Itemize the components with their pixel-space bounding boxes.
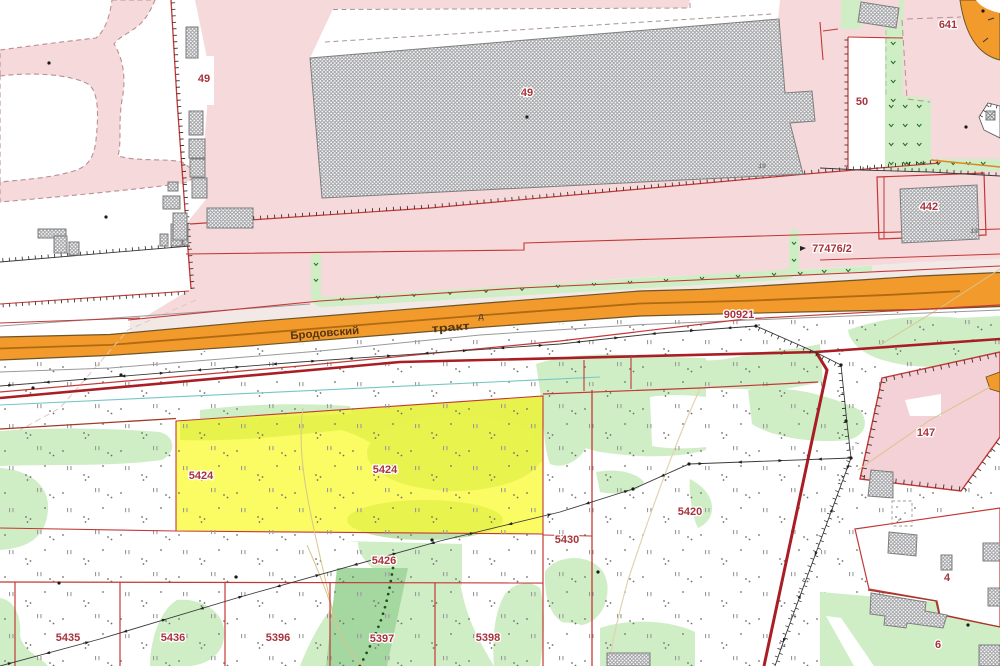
svg-text:6: 6 — [935, 639, 941, 651]
svg-text:442: 442 — [920, 201, 938, 213]
svg-text:641: 641 — [939, 19, 957, 31]
svg-text:5424: 5424 — [373, 464, 398, 476]
svg-text:4: 4 — [944, 572, 951, 584]
svg-text:5397: 5397 — [370, 633, 394, 645]
svg-text:49: 49 — [521, 87, 533, 99]
svg-text:5420: 5420 — [678, 506, 702, 518]
svg-text:147: 147 — [917, 427, 935, 439]
svg-text:19: 19 — [970, 228, 978, 235]
svg-text:49: 49 — [198, 73, 210, 85]
svg-text:50: 50 — [856, 96, 868, 108]
svg-text:5396: 5396 — [266, 632, 290, 644]
svg-text:90921: 90921 — [724, 309, 755, 321]
svg-text:5436: 5436 — [161, 632, 185, 644]
svg-text:19: 19 — [758, 163, 766, 170]
svg-text:77476/2: 77476/2 — [812, 243, 852, 255]
svg-text:5435: 5435 — [56, 632, 80, 644]
svg-text:5426: 5426 — [372, 555, 396, 567]
svg-text:5398: 5398 — [476, 632, 500, 644]
svg-text:5424: 5424 — [189, 470, 214, 482]
svg-text:5430: 5430 — [555, 534, 579, 546]
svg-text:~: ~ — [855, 439, 860, 448]
